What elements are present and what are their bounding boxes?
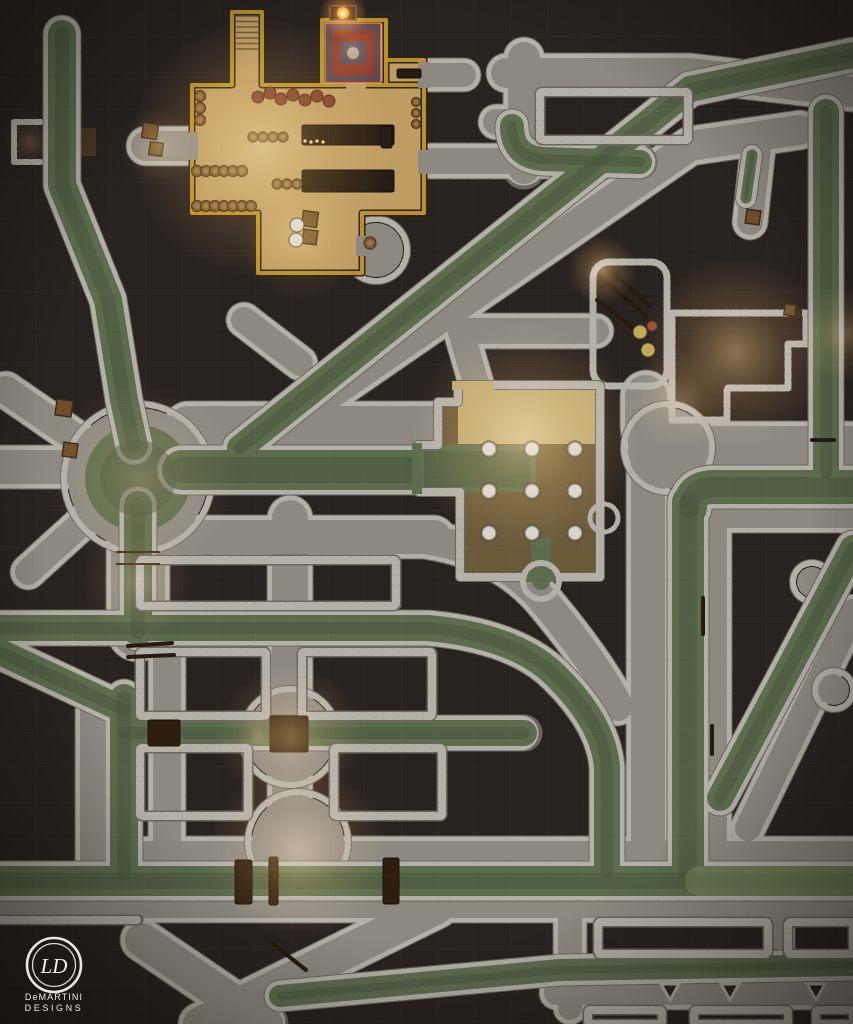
logo-monogram: LD xyxy=(40,954,68,978)
logo-line1: DeMARTINI xyxy=(25,992,83,1002)
battle-map: LD DeMARTINI DESIGNS xyxy=(0,0,853,1024)
vignette xyxy=(0,0,853,1024)
logo-line2: DESIGNS xyxy=(25,1003,84,1013)
battle-map-screenshot: LD DeMARTINI DESIGNS xyxy=(0,0,853,1024)
